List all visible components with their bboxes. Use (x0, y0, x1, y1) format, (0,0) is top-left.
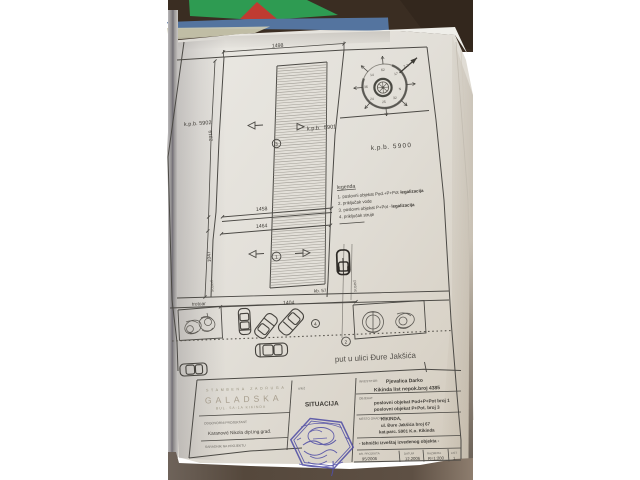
svg-text:25: 25 (382, 100, 386, 104)
svg-text:14: 14 (370, 73, 374, 77)
svg-text:2319: 2319 (208, 130, 215, 141)
svg-text:k.p.b.: k.p.b. (371, 144, 390, 152)
svg-text:95/2006: 95/2006 (362, 456, 378, 462)
svg-text:62: 62 (381, 68, 385, 72)
svg-text:5901: 5901 (324, 124, 337, 131)
svg-text:1498: 1498 (272, 43, 284, 50)
svg-text:crtež: crtež (298, 386, 306, 390)
svg-text:SITUACIJA: SITUACIJA (305, 400, 339, 408)
svg-text:1464: 1464 (256, 223, 268, 230)
svg-text:1047: 1047 (206, 251, 213, 262)
svg-text:17: 17 (394, 72, 398, 76)
svg-text:32: 32 (393, 96, 397, 100)
svg-text:1458: 1458 (256, 206, 268, 213)
svg-text:KIKINDA,: KIKINDA, (381, 416, 402, 422)
svg-text:sused: sused (209, 280, 214, 292)
svg-text:36: 36 (364, 85, 368, 89)
svg-text:R=1:200: R=1:200 (428, 455, 445, 461)
svg-text:sused: sused (352, 280, 357, 292)
svg-text:kb. 57: kb. 57 (314, 288, 327, 294)
svg-text:24: 24 (370, 97, 374, 101)
svg-text:5900: 5900 (393, 142, 413, 150)
svg-text:INVESTITOR: INVESTITOR (359, 379, 378, 384)
svg-text:LIST: LIST (451, 451, 457, 455)
svg-text:OBJEKAT: OBJEKAT (359, 396, 373, 400)
svg-text:k.p.b.: k.p.b. (307, 126, 322, 133)
svg-text:1404: 1404 (283, 300, 295, 306)
svg-text:trotoar: trotoar (192, 301, 206, 307)
svg-text:12.2006: 12.2006 (405, 456, 421, 462)
